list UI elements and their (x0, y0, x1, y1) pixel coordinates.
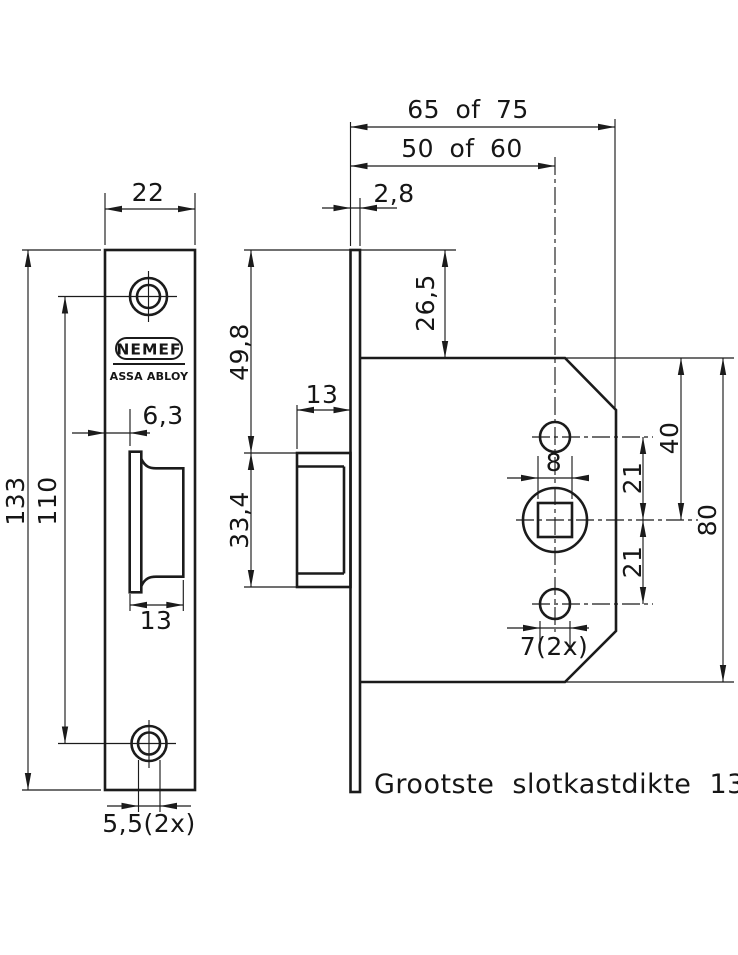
dim-screw-hole-dia: 5,5(2x) (102, 760, 195, 838)
screw-hole-bottom (58, 720, 176, 768)
dim-top-offset: 26,5 (360, 250, 456, 358)
dim-label-top-to-latch: 49,8 (225, 323, 254, 381)
dim-label-case-height: 80 (693, 504, 722, 537)
dim-plate-width: 22 (105, 178, 195, 245)
dim-label-fixing-hole-dia: 7(2x) (520, 632, 589, 661)
brand-sub: ASSA ABLOY (110, 370, 189, 383)
dim-spindle-to-top-hole: 21 (618, 437, 647, 520)
dim-label-spindle-to-bottom-hole: 21 (618, 546, 647, 579)
dim-label-latch-offset: 6,3 (142, 401, 183, 430)
dim-latch-depth-side: 13 (297, 380, 351, 449)
latch-bolt-side (297, 453, 351, 587)
dim-screw-spacing: 110 (33, 297, 68, 744)
dim-label-screw-spacing: 110 (33, 476, 62, 525)
faceplate-side-view: 13 49,8 33,4 2,8 (225, 122, 415, 792)
dim-fixing-hole-dia: 7(2x) (507, 621, 589, 661)
dim-spindle-square: 8 (507, 448, 589, 499)
dim-latch-width-front: 13 (130, 580, 183, 635)
dim-top-to-spindle: 40 (655, 358, 684, 520)
dim-label-top-to-spindle: 40 (655, 422, 684, 455)
nemef-logo: NEMEF ASSA ABLOY (110, 338, 189, 383)
dim-backset: 50 of 60 (351, 134, 556, 169)
note-text: Grootste slotkastdikte 13 mm (374, 769, 738, 800)
dim-label-plate-height: 133 (1, 476, 30, 525)
dim-label-latch-height: 33,4 (225, 491, 254, 549)
latch-bolt-front (130, 452, 184, 593)
dim-label-spindle-square: 8 (546, 448, 562, 477)
dim-label-screw-hole-dia: 5,5(2x) (102, 809, 195, 838)
drawing-canvas: NEMEF ASSA ABLOY 22 (0, 0, 738, 955)
dim-top-to-latch: 49,8 (225, 250, 351, 453)
brand-name: NEMEF (116, 341, 181, 359)
dim-latch-offset: 6,3 (72, 401, 184, 446)
dim-spindle-to-bottom-hole: 21 (618, 520, 647, 604)
dim-label-backset: 50 of 60 (401, 134, 523, 163)
lock-technical-drawing: NEMEF ASSA ABLOY 22 (0, 0, 738, 955)
faceplate-outline (105, 250, 195, 790)
dim-label-plate-width: 22 (132, 178, 165, 207)
faceplate-front-view: NEMEF ASSA ABLOY 22 (1, 178, 196, 838)
lock-case-view: 8 21 21 40 80 (360, 157, 734, 682)
dim-label-latch-width-front: 13 (140, 606, 173, 635)
dim-label-latch-depth-side: 13 (306, 380, 339, 409)
faceplate-edge (351, 250, 361, 792)
dim-latch-height: 33,4 (225, 453, 297, 587)
dim-label-top-offset: 26,5 (411, 274, 440, 332)
dim-label-spindle-to-top-hole: 21 (618, 462, 647, 495)
dim-label-case-depth: 65 of 75 (407, 95, 529, 124)
screw-hole-top (58, 271, 177, 322)
dim-case-height: 80 (693, 358, 726, 682)
dim-label-plate-thickness: 2,8 (373, 179, 414, 208)
